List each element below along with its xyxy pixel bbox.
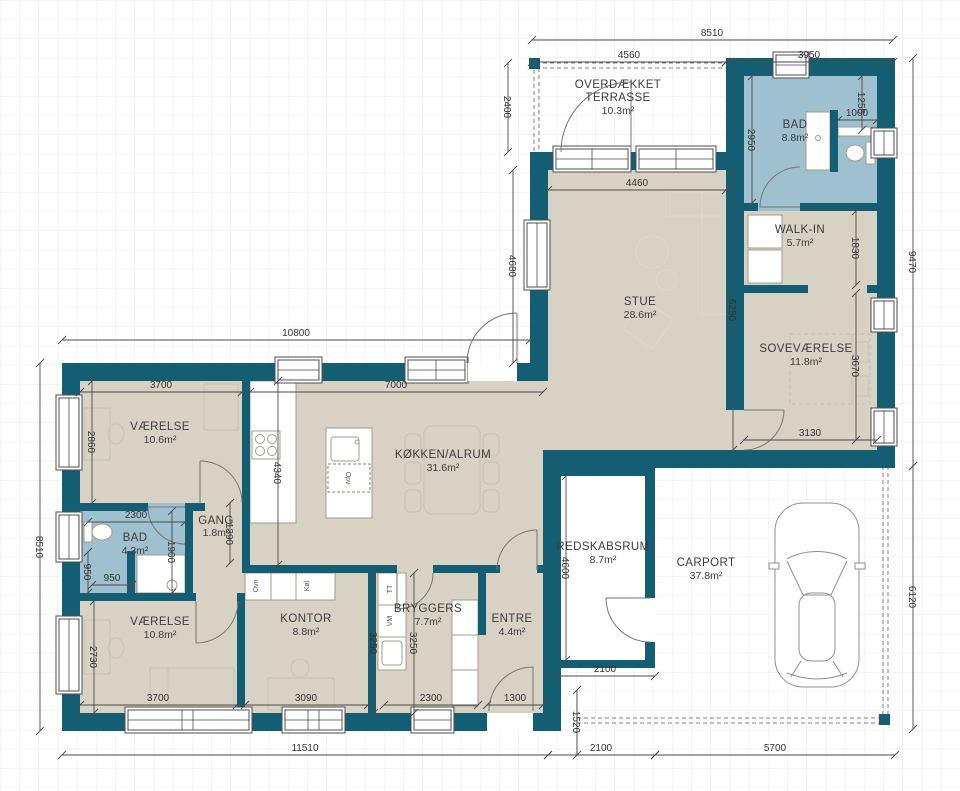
svg-text:28.6m²: 28.6m² — [624, 309, 657, 321]
svg-text:1900: 1900 — [165, 541, 176, 564]
room-label-bad-top: BAD 8.8m² — [782, 119, 809, 144]
svg-text:3700: 3700 — [147, 693, 170, 704]
svg-text:3670: 3670 — [849, 355, 860, 378]
svg-text:6120: 6120 — [906, 586, 917, 609]
svg-text:GANG: GANG — [198, 515, 233, 527]
svg-text:950: 950 — [81, 564, 92, 581]
svg-text:4680: 4680 — [506, 255, 517, 278]
svg-text:10.3m²: 10.3m² — [602, 105, 635, 117]
svg-text:5.7m²: 5.7m² — [787, 237, 814, 249]
svg-text:BAD: BAD — [783, 119, 808, 131]
svg-text:1255: 1255 — [855, 92, 866, 115]
svg-text:KØKKEN/ALRUM: KØKKEN/ALRUM — [395, 449, 491, 461]
window — [56, 395, 82, 470]
svg-text:10.8m²: 10.8m² — [144, 629, 177, 641]
svg-text:7000: 7000 — [385, 380, 408, 391]
window — [871, 128, 897, 158]
window — [56, 512, 82, 562]
svg-text:1520: 1520 — [570, 711, 581, 734]
floor-plan: Opv Ovn Køl TT VM — [0, 0, 960, 791]
svg-text:2100: 2100 — [590, 743, 613, 754]
svg-text:1830: 1830 — [849, 237, 860, 260]
svg-text:2300: 2300 — [420, 693, 443, 704]
svg-text:2300: 2300 — [125, 510, 148, 521]
svg-text:11.8m²: 11.8m² — [790, 356, 822, 368]
svg-text:STUE: STUE — [624, 296, 656, 308]
svg-text:KONTOR: KONTOR — [280, 613, 331, 625]
svg-text:OVERDÆKKET: OVERDÆKKET — [575, 79, 661, 91]
svg-text:3700: 3700 — [150, 380, 173, 391]
vanity-icon — [806, 112, 830, 170]
window — [636, 146, 716, 172]
laundry-cabinets: TT VM — [378, 573, 406, 670]
svg-text:3250: 3250 — [367, 632, 378, 655]
svg-text:SOVEVÆRELSE: SOVEVÆRELSE — [759, 343, 852, 355]
svg-text:2950: 2950 — [745, 129, 756, 152]
stove-icon — [252, 431, 280, 459]
window — [411, 707, 454, 733]
window — [871, 298, 897, 332]
door-opening — [468, 363, 517, 381]
svg-text:9470: 9470 — [906, 251, 917, 274]
washer-label: VM — [387, 616, 394, 627]
terrace-door — [553, 146, 631, 172]
svg-text:2860: 2860 — [85, 431, 96, 454]
toilet-icon — [84, 522, 112, 542]
bryggers-tall-cabinet — [452, 600, 478, 706]
car-icon — [769, 503, 865, 687]
svg-text:11510: 11510 — [291, 743, 319, 754]
svg-text:8.8m²: 8.8m² — [293, 626, 320, 638]
svg-text:3250: 3250 — [407, 632, 418, 655]
svg-text:1300: 1300 — [504, 693, 527, 704]
tall-cabinets: Ovn Køl — [245, 573, 335, 600]
svg-text:3090: 3090 — [295, 693, 318, 704]
entry-door-opening — [487, 713, 533, 731]
svg-text:4560: 4560 — [618, 50, 641, 61]
window — [56, 616, 82, 694]
utility-sink-icon — [382, 641, 402, 665]
svg-text:4600: 4600 — [559, 557, 570, 580]
svg-text:950: 950 — [104, 573, 121, 584]
svg-text:4.3m²: 4.3m² — [122, 545, 149, 557]
dishwasher-label: Opv — [344, 472, 351, 485]
svg-text:10800: 10800 — [282, 328, 310, 339]
svg-text:CARPORT: CARPORT — [677, 557, 736, 569]
svg-text:7.7m²: 7.7m² — [415, 616, 442, 628]
svg-text:4.4m²: 4.4m² — [499, 626, 526, 638]
fridge-label: Køl — [304, 580, 311, 591]
svg-text:3130: 3130 — [799, 428, 822, 439]
svg-text:1.8m²: 1.8m² — [203, 527, 230, 539]
svg-text:ENTRE: ENTRE — [492, 613, 533, 625]
svg-text:2730: 2730 — [87, 646, 98, 669]
sink-icon — [331, 437, 359, 461]
window — [524, 220, 550, 290]
svg-text:5700: 5700 — [764, 743, 787, 754]
svg-text:4460: 4460 — [626, 178, 649, 189]
carport-post — [879, 714, 890, 725]
room-label-gang: GANG 1.8m² — [198, 515, 233, 539]
svg-text:4340: 4340 — [271, 462, 282, 485]
svg-text:WALK-IN: WALK-IN — [775, 224, 825, 236]
svg-text:8510: 8510 — [701, 28, 724, 39]
svg-text:10.6m²: 10.6m² — [144, 434, 177, 446]
svg-text:31.6m²: 31.6m² — [427, 462, 460, 474]
svg-text:VÆRELSE: VÆRELSE — [130, 616, 190, 628]
svg-text:37.8m²: 37.8m² — [690, 570, 723, 582]
window — [405, 357, 468, 383]
window — [282, 707, 345, 733]
svg-text:2400: 2400 — [501, 96, 512, 119]
svg-text:VÆRELSE: VÆRELSE — [130, 421, 190, 433]
svg-text:2100: 2100 — [594, 664, 617, 675]
svg-text:8.8m²: 8.8m² — [782, 132, 809, 144]
svg-text:REDSKABSRUM: REDSKABSRUM — [556, 541, 649, 553]
room-label-stue: STUE 28.6m² — [624, 296, 657, 321]
room-label-bad-lille: BAD 4.3m² — [122, 532, 149, 557]
svg-text:BAD: BAD — [123, 532, 148, 544]
window — [125, 707, 252, 733]
svg-text:6250: 6250 — [726, 299, 737, 322]
dryer-label: TT — [387, 584, 394, 593]
window — [275, 357, 322, 383]
svg-text:3950: 3950 — [798, 50, 821, 61]
svg-text:8.7m²: 8.7m² — [590, 554, 617, 566]
svg-text:TERRASSE: TERRASSE — [585, 92, 650, 104]
svg-text:BRYGGERS: BRYGGERS — [394, 603, 462, 615]
oven-label: Ovn — [253, 579, 260, 592]
svg-text:8510: 8510 — [33, 536, 44, 559]
